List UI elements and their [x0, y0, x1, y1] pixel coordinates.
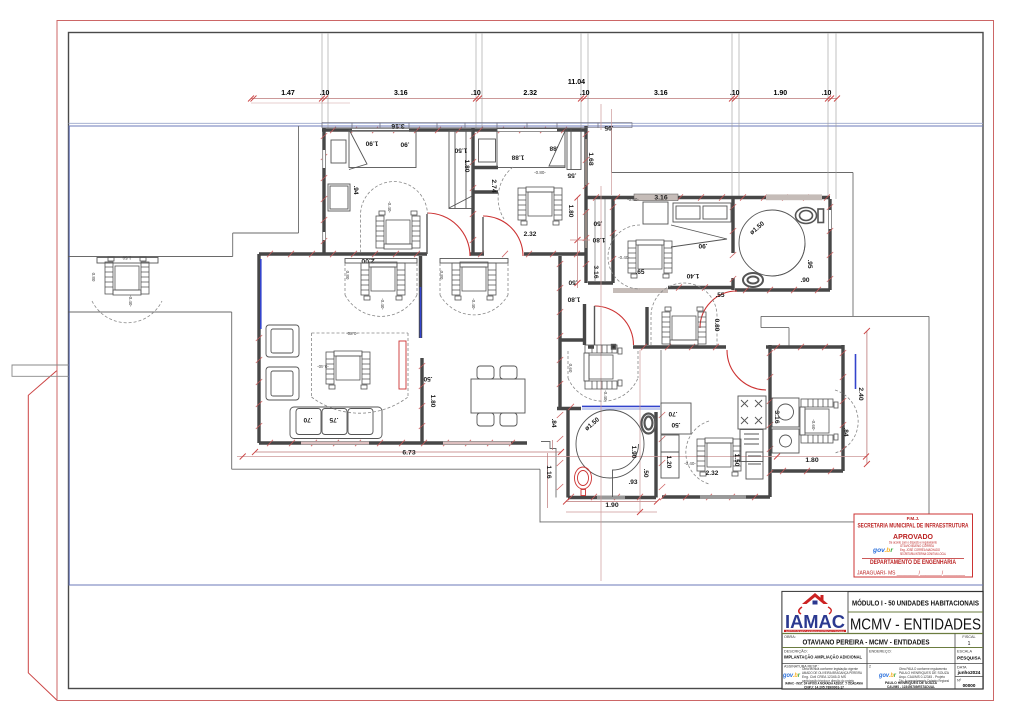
- svg-text:1.50: 1.50: [122, 256, 131, 261]
- svg-text:ENDEREÇO:: ENDEREÇO:: [869, 650, 892, 654]
- svg-text:.84: .84: [842, 427, 849, 436]
- svg-text:OBRA:: OBRA:: [784, 635, 796, 639]
- svg-text:-0.80-: -0.80-: [627, 197, 639, 202]
- svg-text:6.73: 6.73: [402, 450, 415, 457]
- svg-text:JARAGUARI- MS ________/_______: JARAGUARI- MS ________/________/________: [857, 571, 966, 577]
- svg-text:0.80: 0.80: [91, 273, 96, 282]
- svg-text:gov.br: gov.br: [872, 547, 893, 554]
- svg-text:2.32: 2.32: [706, 470, 719, 477]
- svg-text:.95: .95: [806, 259, 813, 268]
- svg-text:MCMV - ENTIDADES: MCMV - ENTIDADES: [850, 617, 981, 634]
- svg-text:DESCRIÇÃO:: DESCRIÇÃO:: [784, 649, 808, 654]
- svg-text:-0.40-: -0.40-: [471, 298, 476, 310]
- svg-text:.90: .90: [800, 277, 809, 284]
- svg-text:.10: .10: [730, 90, 740, 97]
- svg-text:DEPARTAMENTO DE ENGENHARIA: DEPARTAMENTO DE ENGENHARIA: [870, 559, 956, 566]
- svg-text:.10: .10: [822, 90, 832, 97]
- svg-text:CAU/MS - 123456789/ESTADUAL: CAU/MS - 123456789/ESTADUAL: [887, 684, 935, 689]
- svg-text:.88: .88: [549, 145, 558, 152]
- svg-text:.70: .70: [668, 410, 677, 417]
- svg-text:1.90: 1.90: [605, 502, 618, 509]
- svg-text:-0.40-: -0.40-: [128, 295, 133, 307]
- svg-text:1.90: 1.90: [630, 446, 637, 459]
- svg-text:1.47: 1.47: [281, 90, 295, 97]
- svg-text:1.20: 1.20: [665, 456, 672, 469]
- svg-text:00000: 00000: [963, 683, 976, 688]
- svg-text:1.68: 1.68: [587, 152, 594, 165]
- svg-text:-0.80-: -0.80-: [346, 331, 358, 336]
- svg-text:2: 2: [869, 665, 871, 669]
- svg-text:.10: .10: [580, 90, 590, 97]
- svg-text:SECRETARIA MUNICIPAL DE INFRAE: SECRETARIA MUNICIPAL DE INFRAESTRUTURA: [858, 524, 970, 530]
- svg-text:Nº: Nº: [957, 679, 962, 683]
- svg-text:3.16: 3.16: [654, 195, 667, 202]
- svg-text:0.60: 0.60: [568, 364, 573, 373]
- svg-text:.84: .84: [550, 418, 557, 427]
- svg-text:P.M.J.: P.M.J.: [907, 516, 920, 521]
- svg-text:3.16: 3.16: [592, 265, 599, 278]
- svg-text:1: 1: [968, 641, 971, 647]
- svg-text:.93: .93: [628, 479, 637, 486]
- svg-text:2.74: 2.74: [490, 179, 497, 192]
- svg-text:1.16: 1.16: [545, 465, 552, 478]
- svg-text:CNPJ: 14.205.789/0001-17: CNPJ: 14.205.789/0001-17: [804, 685, 844, 690]
- svg-text:1.50: 1.50: [454, 147, 467, 154]
- svg-text:3.16: 3.16: [391, 122, 404, 129]
- svg-text:.94: .94: [352, 185, 359, 194]
- svg-text:2.40: 2.40: [857, 387, 864, 400]
- svg-text:-0.40-: -0.40-: [684, 461, 696, 466]
- svg-text:DATA: DATA: [957, 666, 967, 670]
- svg-text:.50: .50: [642, 468, 649, 477]
- svg-text:-0.40-: -0.40-: [618, 255, 630, 260]
- svg-text:ESCALA: ESCALA: [957, 650, 972, 654]
- svg-text:-0.40-: -0.40-: [380, 298, 385, 310]
- svg-text:0.80: 0.80: [713, 319, 720, 332]
- svg-text:1.80: 1.80: [567, 296, 580, 303]
- svg-text:-0.80-: -0.80-: [534, 170, 546, 175]
- svg-text:.90: .90: [400, 141, 409, 148]
- svg-text:1.90: 1.90: [365, 140, 378, 147]
- svg-text:SECRETARIA INTERINA COMITIVA L: SECRETARIA INTERINA COMITIVA LOCAL: [900, 552, 946, 556]
- svg-text:1.88: 1.88: [511, 154, 524, 161]
- svg-text:.50: .50: [568, 279, 577, 286]
- svg-text:.75: .75: [329, 416, 338, 423]
- svg-text:1.80: 1.80: [429, 395, 436, 408]
- svg-text:.10: .10: [320, 90, 330, 97]
- svg-text:-0.60-: -0.60-: [811, 419, 816, 431]
- svg-text:-0.40-: -0.40-: [317, 364, 329, 369]
- svg-text:PESQUISA: PESQUISA: [957, 656, 981, 661]
- svg-text:1.80: 1.80: [463, 160, 470, 173]
- svg-text:-0.40-: -0.40-: [603, 390, 608, 402]
- svg-text:.50: .50: [671, 421, 680, 428]
- svg-text:0.80: 0.80: [345, 271, 350, 280]
- svg-text:3.16: 3.16: [394, 90, 408, 97]
- svg-text:gov.br: gov.br: [782, 672, 800, 679]
- svg-text:.10: .10: [471, 90, 481, 97]
- svg-text:.95: .95: [604, 124, 613, 131]
- svg-text:.50: .50: [423, 375, 432, 382]
- svg-text:1.80: 1.80: [592, 236, 605, 243]
- svg-text:1.90: 1.90: [773, 90, 787, 97]
- svg-text:INSTITUTO DE APOIO A MORADIA A: INSTITUTO DE APOIO A MORADIA ASSISTENCIA…: [786, 631, 844, 634]
- svg-text:3.16: 3.16: [654, 90, 668, 97]
- svg-text:1.80: 1.80: [567, 205, 574, 218]
- svg-text:IMPLANTAÇÃO AMPLIAÇÃO ADICIONA: IMPLANTAÇÃO AMPLIAÇÃO ADICIONAL: [784, 655, 862, 660]
- svg-text:.65: .65: [635, 269, 644, 276]
- svg-text:gov.br: gov.br: [878, 672, 896, 679]
- svg-text:1.40: 1.40: [686, 272, 699, 279]
- svg-text:.90: .90: [698, 242, 707, 249]
- svg-text:1.50: 1.50: [733, 454, 740, 467]
- svg-text:2.32: 2.32: [523, 90, 537, 97]
- svg-text:.70: .70: [303, 416, 312, 423]
- svg-text:MÓDULO I - 50 UNIDADES HABITAC: MÓDULO I - 50 UNIDADES HABITACIONAIS: [852, 599, 979, 608]
- svg-text:.55: .55: [567, 172, 576, 179]
- svg-text:OTAVIANO PEREIRA - MCMV - ENT: OTAVIANO PEREIRA - MCMV - ENTIDADES: [803, 638, 930, 647]
- svg-text:11.04: 11.04: [568, 79, 585, 86]
- svg-text:junho2024: junho2024: [957, 670, 981, 675]
- svg-text:0.80: 0.80: [439, 271, 444, 280]
- svg-text:IAMAC: IAMAC: [785, 612, 845, 632]
- svg-text:2.32: 2.32: [524, 231, 537, 238]
- svg-text:.55: .55: [715, 292, 724, 299]
- svg-text:FISCAL: FISCAL: [962, 635, 975, 639]
- svg-text:-0.40-: -0.40-: [387, 201, 392, 213]
- svg-text:.50: .50: [593, 220, 602, 227]
- svg-text:1.80: 1.80: [805, 457, 818, 464]
